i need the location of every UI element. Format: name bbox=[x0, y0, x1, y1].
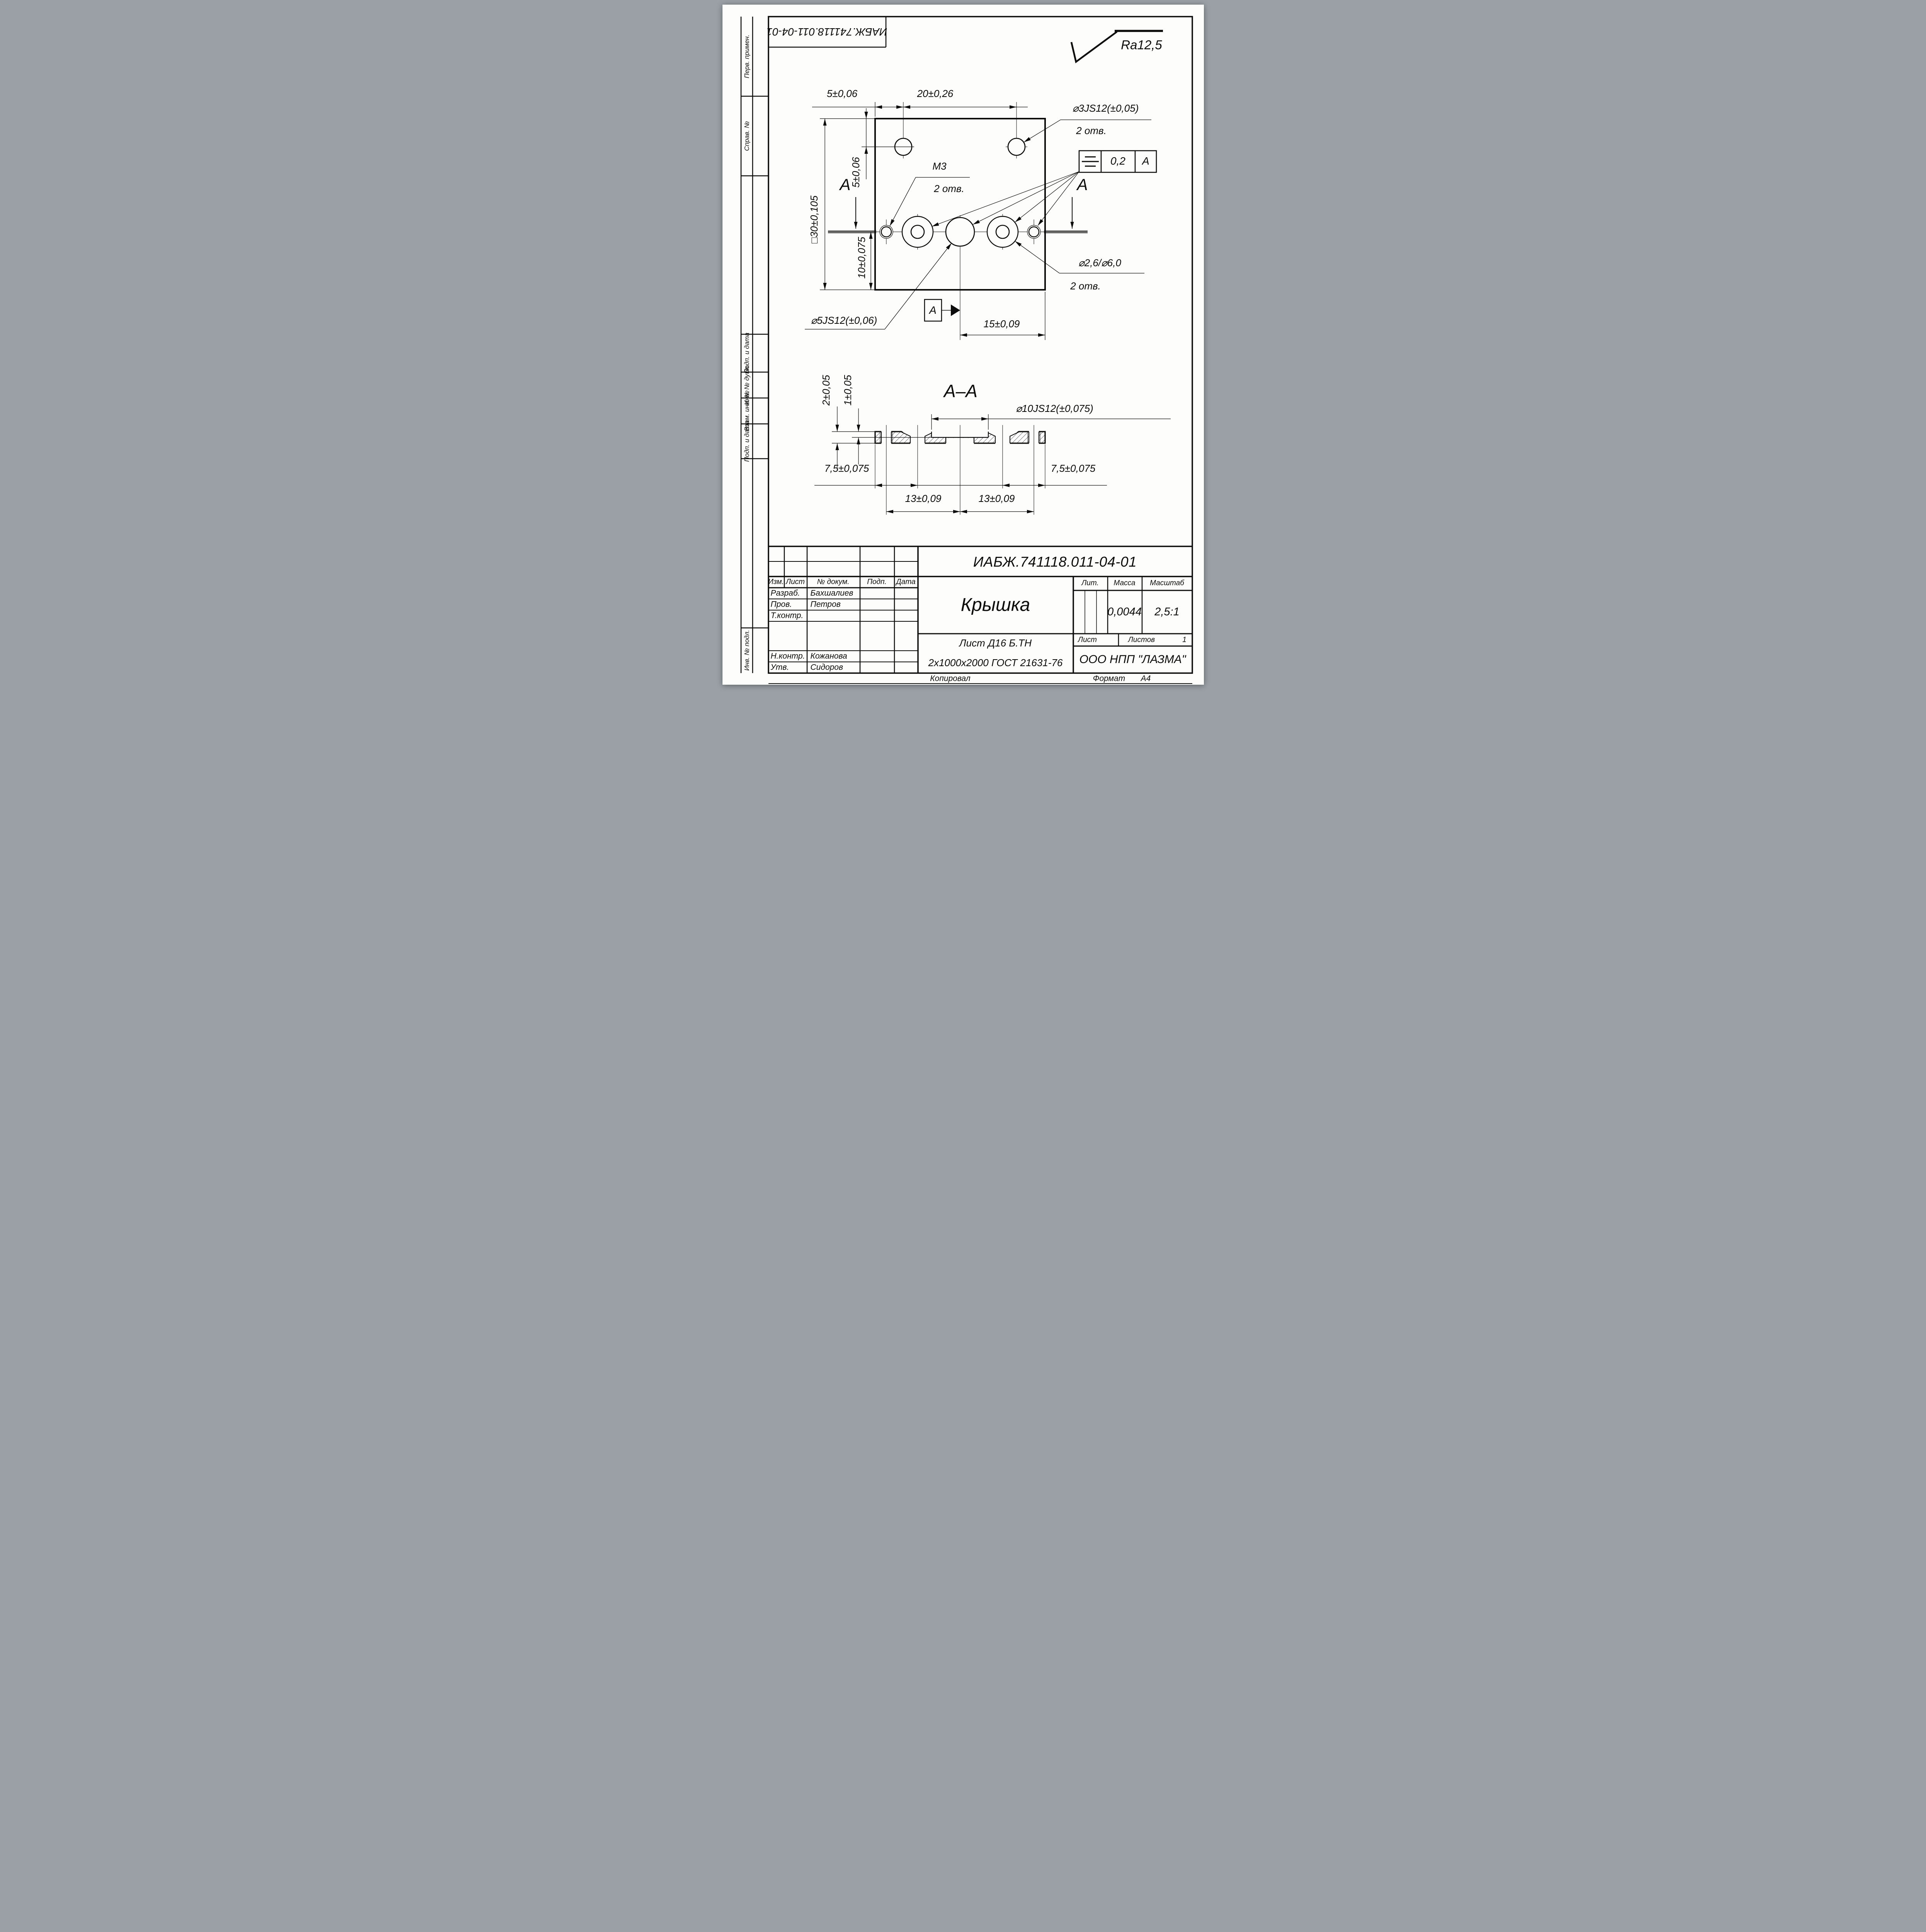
name-utv: Сидоров bbox=[811, 663, 843, 672]
callout-hole5: ⌀5JS12(±0,06) bbox=[811, 315, 877, 325]
role-utv: Утв. bbox=[771, 663, 789, 672]
role-nkontr: Н.контр. bbox=[771, 652, 805, 660]
dim-1: 1±0,05 bbox=[843, 375, 853, 405]
roughness-value: Ra12,5 bbox=[1121, 39, 1162, 51]
callout-hole3-line1: ⌀3JS12(±0,05) bbox=[1073, 103, 1139, 113]
callout-m3-line1: М3 bbox=[932, 161, 946, 171]
value-massa: 0,0044 bbox=[1107, 607, 1142, 618]
dim-20: 20±0,26 bbox=[917, 88, 954, 99]
margin-sprav-no: Справ. № bbox=[743, 121, 750, 151]
sheet-frame bbox=[768, 17, 1192, 673]
material-line1: Лист Д16 Б.ТН bbox=[959, 638, 1032, 648]
name-razrab: Бахшалиев bbox=[811, 589, 853, 597]
dim-13-left: 13±0,09 bbox=[905, 493, 942, 503]
role-prov: Пров. bbox=[771, 600, 792, 609]
hdr-lit: Лит. bbox=[1081, 580, 1099, 587]
material-line2: 2х1000х2000 ГОСТ 21631-76 bbox=[928, 658, 1063, 668]
hdr-doc: № докум. bbox=[817, 578, 850, 586]
value-masshtab: 2,5:1 bbox=[1154, 607, 1180, 618]
callout-hole26-line1: ⌀2,6/⌀6,0 bbox=[1078, 258, 1121, 268]
name-nkontr: Кожанова bbox=[811, 652, 847, 660]
dim-30: □30±0,105 bbox=[809, 196, 819, 243]
role-razrab: Разраб. bbox=[771, 589, 800, 597]
dim-75-left: 7,5±0,075 bbox=[824, 463, 869, 473]
margin-inv-podl: Инв. № подл. bbox=[743, 630, 750, 671]
tolerance-value: 0,2 bbox=[1110, 156, 1125, 167]
dim-13-right: 13±0,09 bbox=[979, 493, 1015, 503]
dim-75-right: 7,5±0,075 bbox=[1051, 463, 1095, 473]
company-name: ООО НПП "ЛАЗМА" bbox=[1079, 654, 1186, 665]
inverted-doc-number: ИАБЖ.741118.011-04-01 bbox=[766, 26, 887, 37]
titleblock-number: ИАБЖ.741118.011-04-01 bbox=[973, 555, 1137, 569]
callout-m3-line2: 2 отв. bbox=[934, 184, 964, 194]
tolerance-datum: A bbox=[1142, 156, 1149, 167]
footer-format-value: А4 bbox=[1141, 675, 1151, 683]
dim-d10: ⌀10JS12(±0,075) bbox=[1016, 403, 1093, 413]
dim-5-left: 5±0,06 bbox=[851, 157, 861, 187]
value-listov: 1 bbox=[1182, 636, 1187, 644]
margin-podp-data-2: Подп. и дата bbox=[743, 421, 750, 462]
dim-2: 2±0,05 bbox=[821, 375, 831, 405]
name-prov: Петров bbox=[811, 600, 841, 609]
margin-perv-primen: Перв. примен. bbox=[743, 35, 750, 78]
hdr-listov: Листов bbox=[1128, 636, 1155, 644]
drawing-sheet: ИАБЖ.741118.011-04-01 Ra12,5 Перв. приме… bbox=[722, 5, 1204, 685]
hdr-masshtab: Масштаб bbox=[1150, 580, 1184, 587]
footer-kopiroval: Копировал bbox=[930, 675, 970, 683]
hdr-list: Лист bbox=[786, 578, 805, 586]
part-name: Крышка bbox=[961, 596, 1030, 614]
hdr-podp: Подп. bbox=[867, 578, 887, 586]
hdr-izm: Изм. bbox=[768, 578, 784, 586]
section-title: А–А bbox=[944, 382, 977, 400]
dim-15: 15±0,09 bbox=[984, 319, 1020, 329]
dim-10: 10±0,075 bbox=[857, 237, 867, 279]
hdr-data: Дата bbox=[896, 578, 915, 586]
hdr-list2: Лист bbox=[1078, 636, 1097, 644]
section-letter-left: A bbox=[840, 177, 850, 193]
dim-5-top: 5±0,06 bbox=[827, 88, 857, 99]
datum-triangle-icon bbox=[951, 304, 960, 316]
section-letter-right: A bbox=[1077, 177, 1088, 193]
footer-format-label: Формат bbox=[1093, 675, 1125, 683]
role-tkontr: Т.контр. bbox=[771, 612, 804, 620]
datum-flag-letter: A bbox=[929, 305, 937, 316]
callout-hole26-line2: 2 отв. bbox=[1070, 281, 1101, 291]
hdr-massa: Масса bbox=[1113, 580, 1135, 587]
callout-hole3-line2: 2 отв. bbox=[1076, 126, 1107, 136]
